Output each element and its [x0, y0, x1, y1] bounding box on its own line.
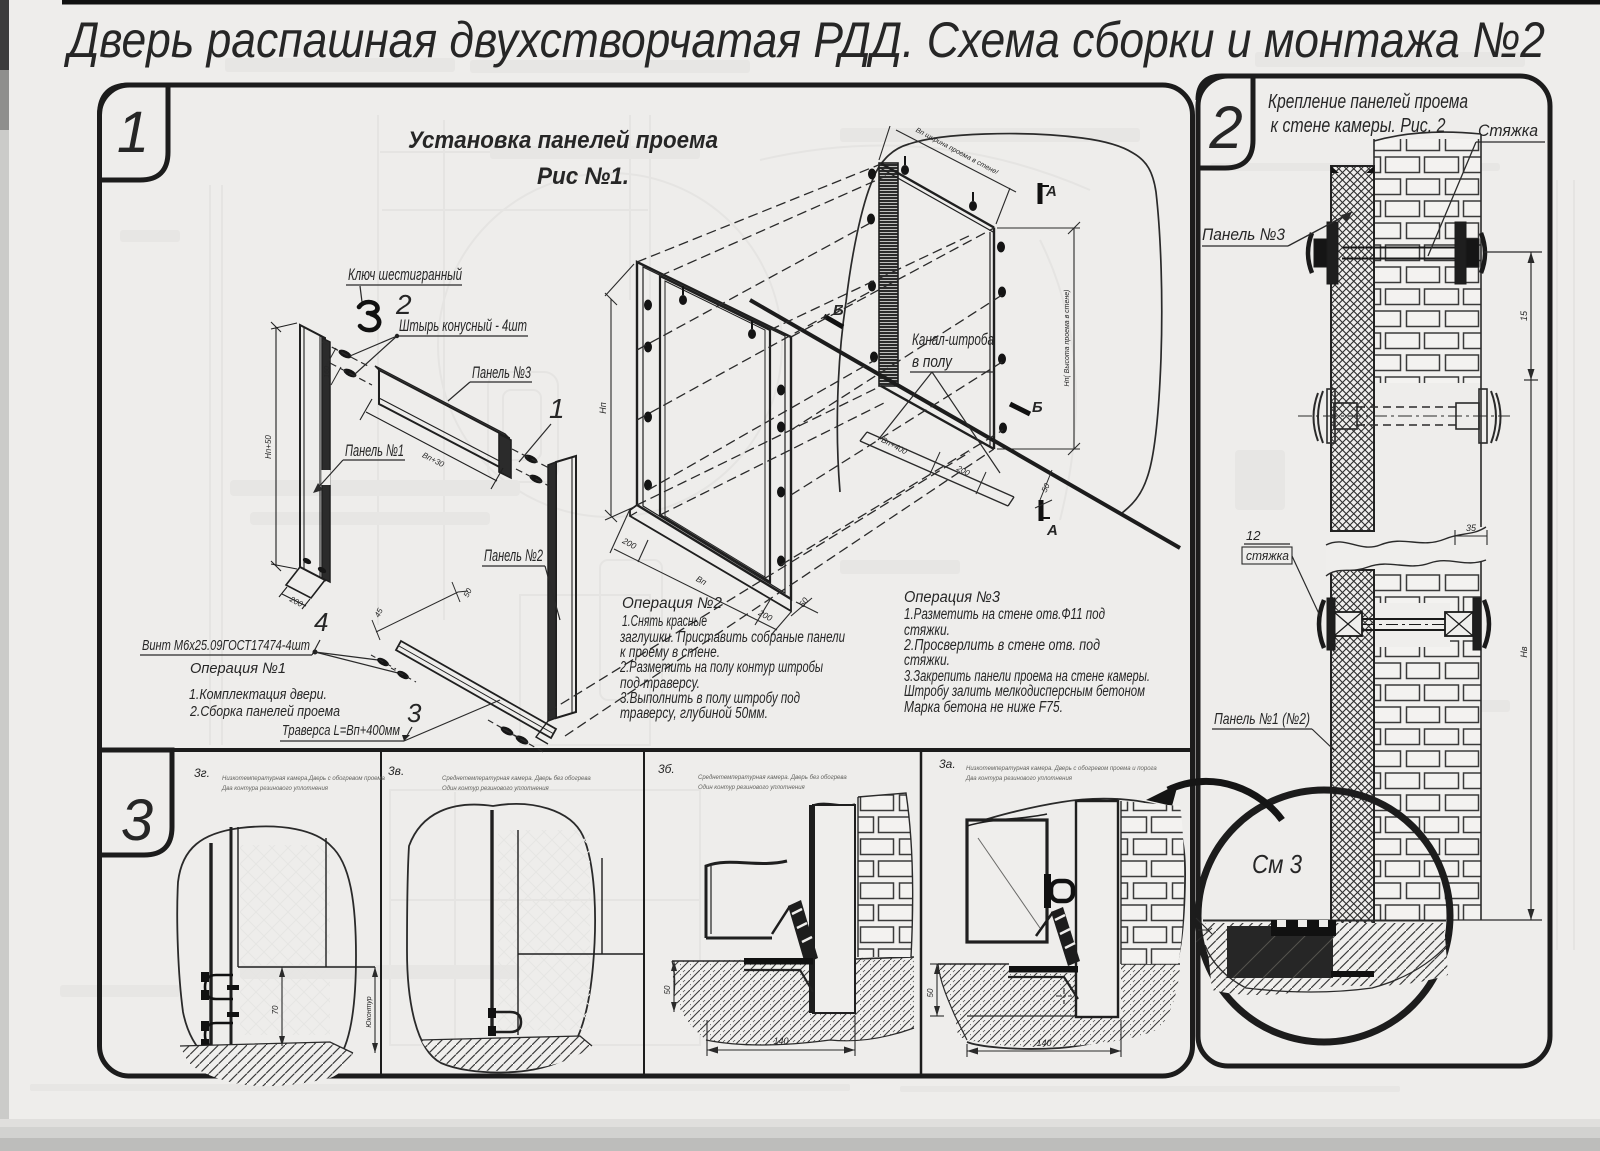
svg-text:160: 160 [324, 366, 331, 378]
svg-text:3: 3 [407, 698, 422, 728]
svg-text:Марка бетона не ниже F75.: Марка бетона не ниже F75. [904, 699, 1063, 716]
svg-text:2: 2 [1208, 94, 1242, 161]
svg-text:Панель №1: Панель №1 [345, 441, 404, 460]
svg-text:Крепление панелей проема: Крепление панелей проема [1268, 90, 1468, 113]
svg-text:Штробу залить мелкодисперсным: Штробу залить мелкодисперсным бетоном [904, 683, 1145, 700]
svg-text:Панель №3: Панель №3 [472, 363, 531, 382]
svg-text:3а.: 3а. [939, 757, 956, 771]
svg-text:Рис №1.: Рис №1. [537, 163, 629, 190]
svg-text:3в.: 3в. [388, 764, 404, 778]
svg-text:Винт М6х25.09ГОСТ17474-4шт: Винт М6х25.09ГОСТ17474-4шт [142, 637, 310, 654]
svg-text:Среднетемпературная камера. Дв: Среднетемпературная камера. Дверь без об… [442, 776, 591, 782]
svg-text:в полу: в полу [912, 352, 953, 371]
svg-text:1.Комплектация двери.: 1.Комплектация двери. [189, 686, 327, 703]
svg-text:Дверь распашная двухстворчатая: Дверь распашная двухстворчатая РДД. Схем… [64, 12, 1546, 68]
svg-text:Один контур резинового уплотне: Один контур резинового уплотнения [698, 785, 806, 791]
svg-text:См 3: См 3 [1252, 849, 1302, 879]
svg-text:Юконтур: Юконтур [366, 996, 373, 1027]
svg-text:Низкотемпературная камера.Двер: Низкотемпературная камера.Дверь с обогре… [222, 776, 386, 782]
svg-text:50: 50 [926, 988, 935, 997]
svg-text:3: 3 [121, 788, 153, 853]
svg-text:траверсу, глубиной 50мм.: траверсу, глубиной 50мм. [620, 705, 768, 722]
svg-text:70: 70 [271, 1005, 280, 1014]
svg-text:Нп: Нп [598, 402, 608, 413]
svg-text:Нв: Нв [1519, 646, 1529, 657]
svg-text:Канал-штроба: Канал-штроба [912, 330, 994, 349]
svg-text:стяжка: стяжка [1246, 548, 1289, 563]
svg-text:Панель №1 (№2): Панель №1 (№2) [1214, 711, 1310, 728]
svg-text:Операция №1: Операция №1 [190, 660, 286, 677]
svg-text:Панель №2: Панель №2 [484, 546, 543, 565]
svg-text:стяжки.: стяжки. [904, 652, 950, 669]
svg-text:Нп+50: Нп+50 [264, 435, 273, 459]
svg-text:Операция №3: Операция №3 [904, 589, 1000, 606]
svg-text:Штырь конусный - 4шт: Штырь конусный - 4шт [399, 316, 527, 335]
svg-text:Установка панелей проема: Установка панелей проема [408, 127, 718, 154]
svg-text:4: 4 [314, 607, 328, 637]
svg-text:Два контура резинового уплотне: Два контура резинового уплотнения [221, 786, 329, 792]
svg-text:Два контура резинового уплотне: Два контура резинового уплотнения [965, 776, 1073, 782]
svg-text:Стяжка: Стяжка [1478, 121, 1538, 140]
svg-text:35: 35 [1466, 523, 1477, 533]
svg-text:50: 50 [663, 985, 672, 994]
svg-text:3г.: 3г. [194, 766, 210, 780]
svg-text:1: 1 [549, 393, 565, 424]
svg-text:12: 12 [1246, 528, 1261, 543]
svg-text:А: А [1046, 522, 1058, 539]
svg-text:Траверса L=Вп+400мм: Траверса L=Вп+400мм [282, 722, 400, 739]
svg-text:1.Разметить на стене отв.Ф11 п: 1.Разметить на стене отв.Ф11 под [904, 606, 1105, 623]
svg-text:к стене камеры. Рис. 2: к стене камеры. Рис. 2 [1271, 114, 1446, 137]
svg-text:А: А [1045, 183, 1057, 200]
svg-text:Нп( Высота проема в стене): Нп( Высота проема в стене) [1064, 290, 1071, 387]
svg-text:Один контур резинового уплотне: Один контур резинового уплотнения [442, 786, 550, 792]
svg-text:3б.: 3б. [658, 762, 675, 776]
svg-text:1.Снять красные: 1.Снять красные [622, 613, 707, 630]
svg-text:2.Разметить на полу контур штр: 2.Разметить на полу контур штробы [619, 659, 823, 676]
svg-text:140: 140 [773, 1036, 788, 1046]
svg-text:Б: Б [1032, 399, 1043, 416]
svg-text:140: 140 [1036, 1038, 1051, 1048]
svg-text:Низкотемпературная камера. Две: Низкотемпературная камера. Дверь с обогр… [966, 766, 1157, 772]
svg-text:1: 1 [117, 100, 149, 165]
svg-text:Операция №2: Операция №2 [622, 595, 722, 612]
svg-text:Ключ шестигранный: Ключ шестигранный [348, 265, 462, 284]
svg-text:Панель №3: Панель №3 [1202, 225, 1285, 244]
svg-text:2.Сборка панелей проема: 2.Сборка панелей проема [189, 703, 340, 720]
svg-text:Среднетемпературная камера. Дв: Среднетемпературная камера. Дверь без об… [698, 775, 847, 781]
svg-text:15: 15 [1519, 310, 1529, 321]
